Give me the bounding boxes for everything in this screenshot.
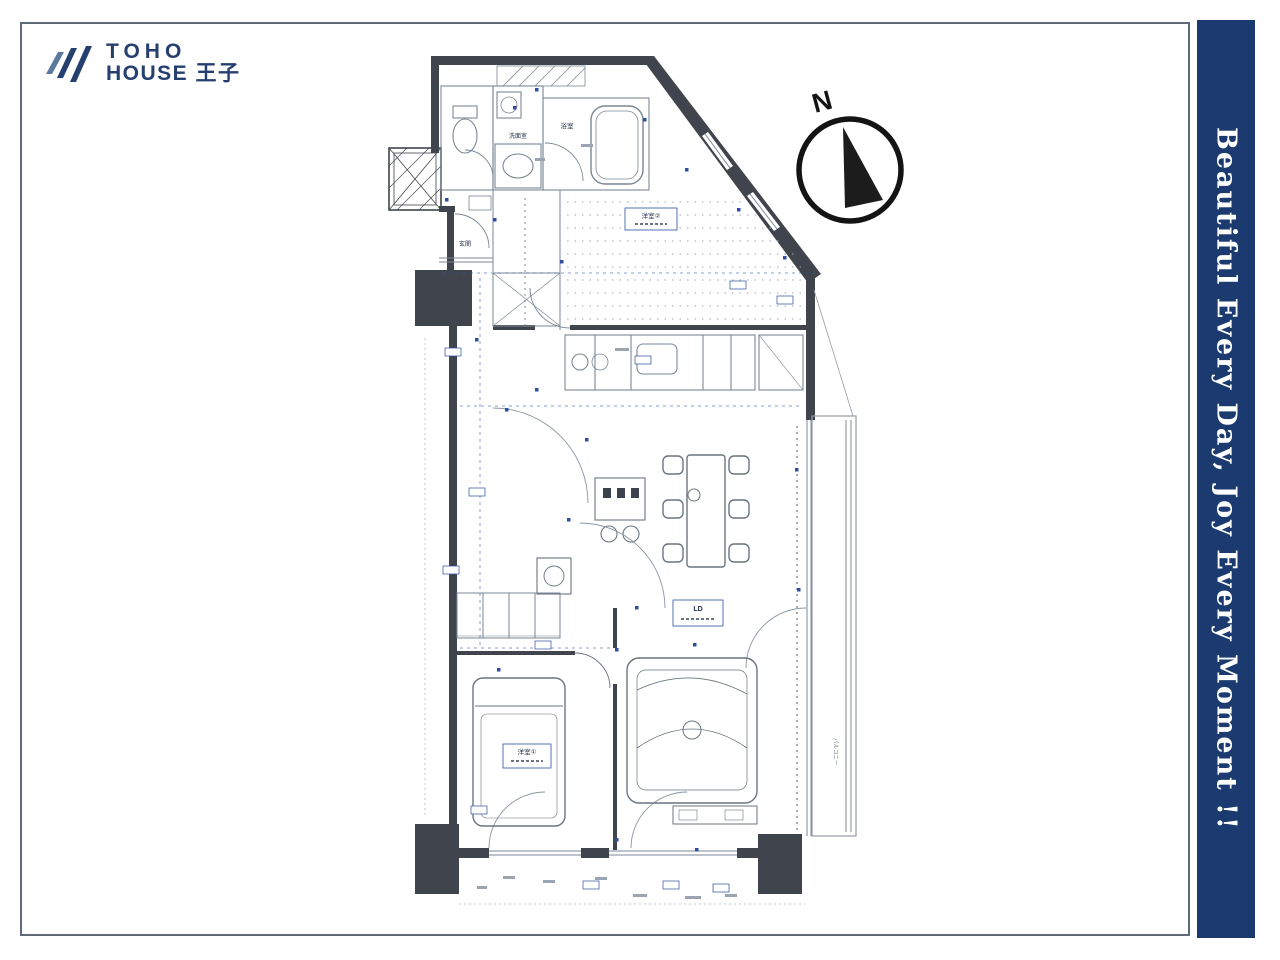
flyer-page: { "page": { "background": "#ffffff", "fr… bbox=[0, 0, 1280, 960]
floorplan-walls bbox=[415, 56, 821, 894]
kitchen-counter-island bbox=[537, 478, 645, 594]
bedroom1-room bbox=[473, 653, 610, 826]
pipe-space-hatch bbox=[497, 66, 585, 86]
door-swing-arcs bbox=[489, 408, 806, 848]
logo-line2: HOUSE 王子 bbox=[106, 63, 241, 85]
slogan-banner: Beautiful Every Day, Joy Every Moment !! bbox=[1197, 20, 1255, 938]
washroom-label: 洗面室 bbox=[509, 132, 527, 140]
bathroom-label: 浴室 bbox=[561, 121, 575, 130]
balcony-label: バルコニー bbox=[832, 738, 839, 765]
dining-set bbox=[663, 455, 749, 567]
annotation-tag-boxes bbox=[443, 281, 793, 892]
bed-rug-set bbox=[627, 658, 757, 824]
balcony bbox=[797, 290, 856, 836]
floorplan: バルコニー bbox=[385, 48, 875, 928]
logo-line1: TOHO bbox=[106, 41, 241, 63]
ld-label-box: LD bbox=[673, 600, 723, 626]
slogan-text: Beautiful Every Day, Joy Every Moment !! bbox=[1211, 127, 1242, 831]
bathroom bbox=[543, 98, 649, 190]
entrance-label: 玄関 bbox=[459, 240, 471, 248]
logo: TOHO HOUSE 王子 bbox=[44, 40, 241, 86]
shaft-hatch-box bbox=[389, 148, 441, 210]
bedroom2-label: 洋室② bbox=[642, 211, 661, 220]
toilet-room bbox=[441, 86, 493, 190]
logo-text: TOHO HOUSE 王子 bbox=[106, 41, 241, 85]
tiny-dimension-text-blobs bbox=[477, 144, 737, 899]
bedroom1-label-box: 洋室① bbox=[503, 744, 551, 768]
storage-closet bbox=[457, 593, 560, 638]
logo-icon bbox=[44, 40, 96, 86]
kitchen bbox=[565, 335, 803, 390]
bedroom2-label-box: 洋室② bbox=[625, 208, 677, 230]
ld-label: LD bbox=[693, 606, 702, 613]
bedroom1-label: 洋室① bbox=[518, 747, 537, 756]
